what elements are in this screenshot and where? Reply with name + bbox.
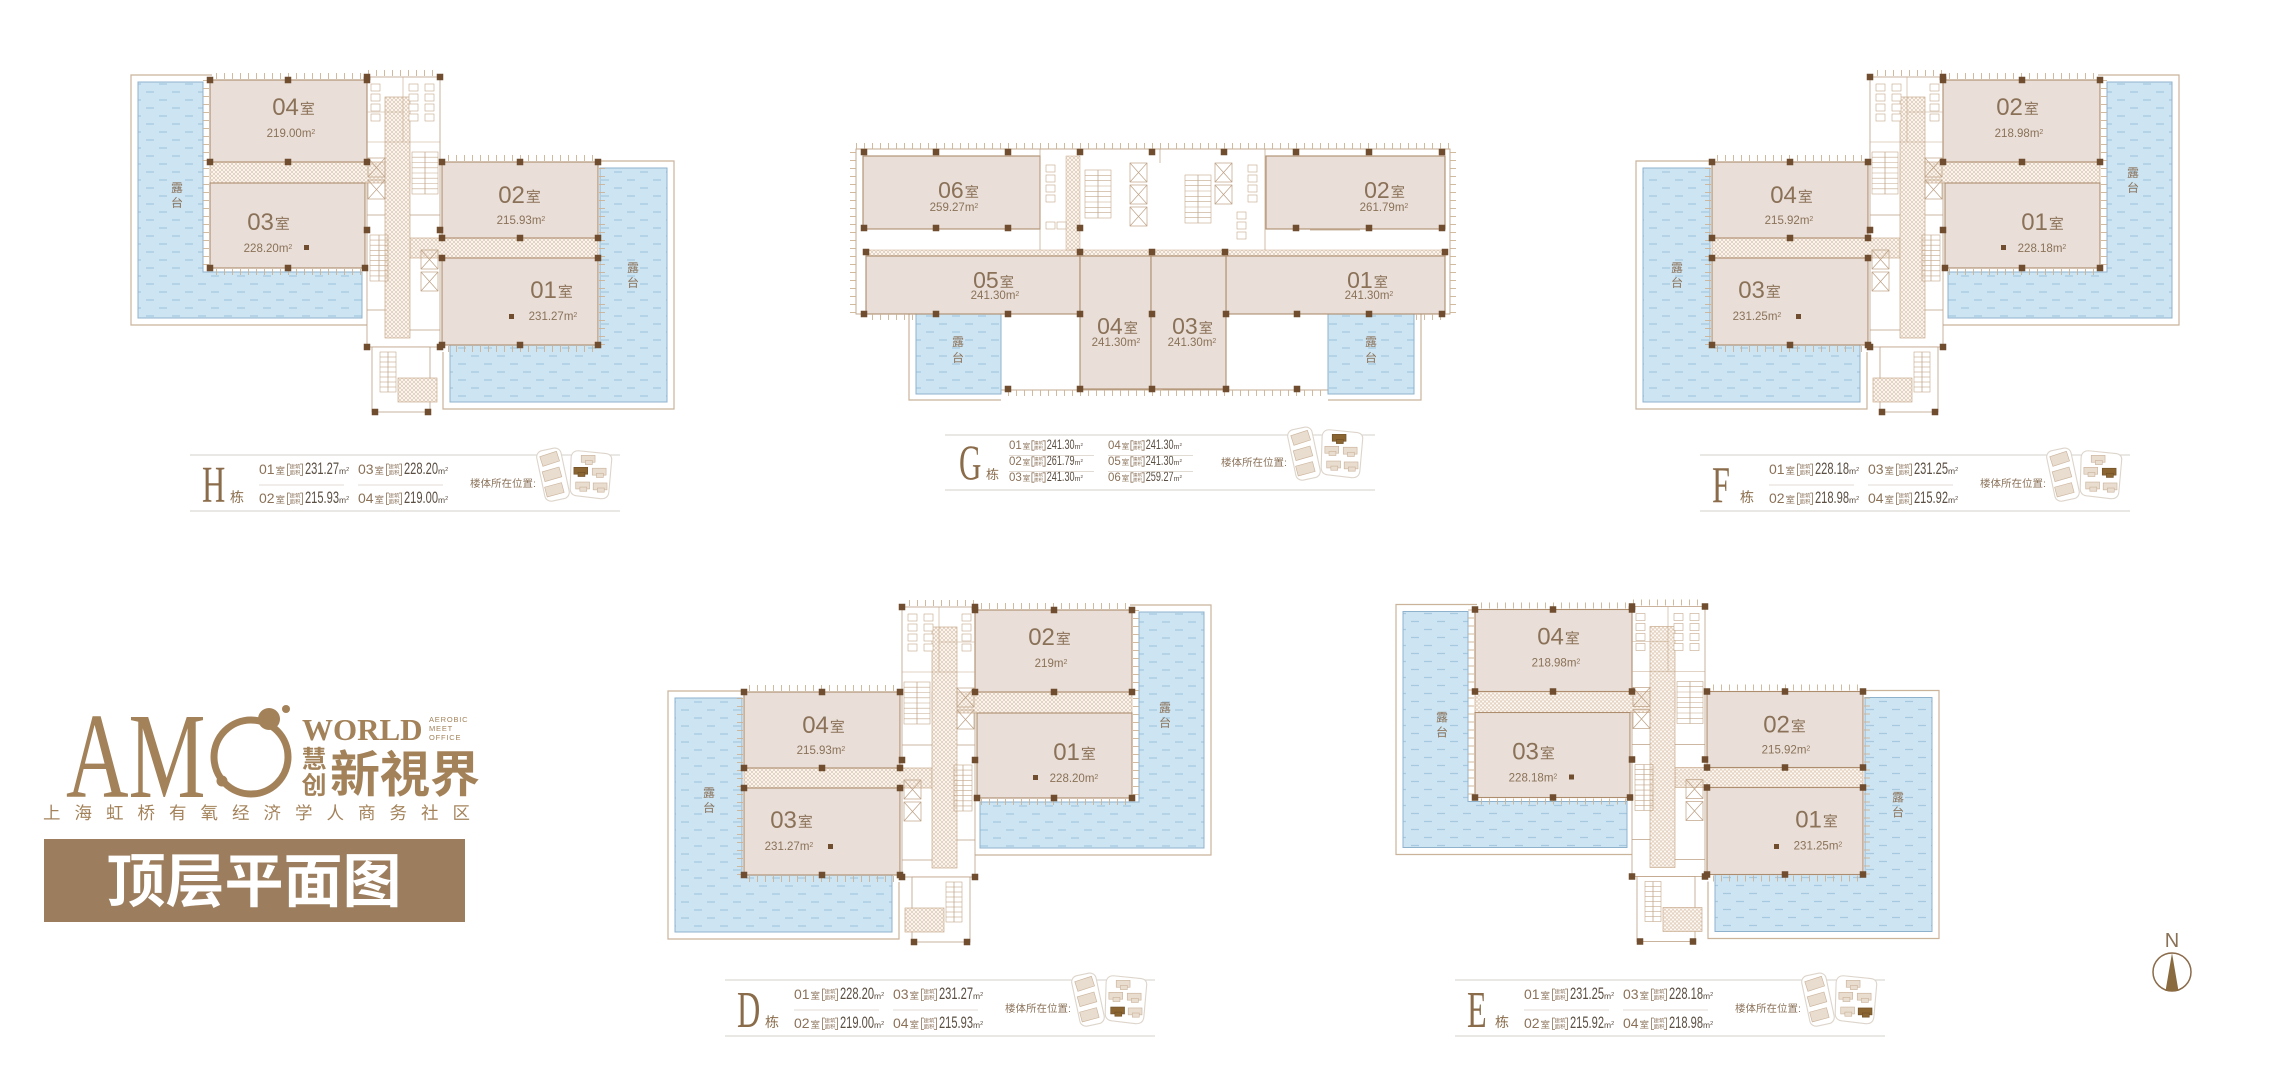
svg-text:06: 06	[1108, 472, 1121, 484]
svg-text:218.98m2: 218.98m2	[1995, 128, 2044, 140]
svg-text:AM: AM	[66, 689, 206, 824]
svg-text:02: 02	[1996, 94, 2023, 121]
svg-text:03: 03	[893, 986, 909, 1002]
svg-text:03: 03	[770, 807, 797, 834]
svg-text:241.30m2: 241.30m2	[1047, 437, 1084, 452]
svg-text:01: 01	[794, 986, 810, 1002]
svg-text:AEROBIC: AEROBIC	[429, 715, 468, 724]
svg-text:01: 01	[1053, 739, 1080, 766]
svg-text:02: 02	[1763, 712, 1790, 739]
svg-text:231.25m2: 231.25m2	[1794, 841, 1843, 853]
svg-text:02: 02	[794, 1015, 810, 1031]
svg-text:04: 04	[802, 712, 829, 739]
svg-text:215.93m2: 215.93m2	[797, 745, 846, 757]
svg-text:01: 01	[1769, 461, 1785, 477]
svg-text:OFFICE: OFFICE	[429, 733, 461, 742]
svg-text:02: 02	[1364, 177, 1390, 203]
svg-text::: :	[2043, 478, 2046, 490]
svg-text:02: 02	[1009, 456, 1022, 468]
svg-text:228.20m2: 228.20m2	[404, 460, 448, 478]
svg-text:01: 01	[1795, 807, 1822, 834]
svg-text:215.93m2: 215.93m2	[939, 1014, 983, 1032]
svg-text:219.00m2: 219.00m2	[404, 489, 448, 507]
svg-text:03: 03	[1868, 461, 1884, 477]
svg-text:H: H	[202, 456, 225, 514]
svg-text:G: G	[959, 435, 981, 490]
svg-text:01: 01	[2021, 209, 2048, 236]
svg-text:228.20m2: 228.20m2	[244, 243, 293, 255]
svg-text:03: 03	[1512, 739, 1539, 766]
svg-text:N: N	[2165, 930, 2179, 952]
svg-text:01: 01	[259, 461, 275, 477]
svg-text:219.00m2: 219.00m2	[267, 128, 316, 140]
svg-text:241.30m2: 241.30m2	[1092, 337, 1141, 349]
svg-text:04: 04	[893, 1015, 909, 1031]
svg-text:04: 04	[1097, 313, 1123, 339]
svg-text:215.92m2: 215.92m2	[1914, 489, 1958, 507]
svg-text::: :	[533, 478, 536, 490]
svg-text:219.00m2: 219.00m2	[840, 1014, 884, 1032]
svg-text:02: 02	[1028, 624, 1055, 651]
svg-text:05: 05	[1108, 456, 1121, 468]
svg-text:01: 01	[530, 277, 557, 304]
svg-text:231.27m2: 231.27m2	[765, 841, 814, 853]
svg-text:228.18m2: 228.18m2	[1669, 985, 1713, 1003]
svg-text:231.25m2: 231.25m2	[1570, 985, 1614, 1003]
svg-text:228.18m2: 228.18m2	[2018, 243, 2067, 255]
svg-text:231.27m2: 231.27m2	[529, 311, 578, 323]
svg-text:231.27m2: 231.27m2	[939, 985, 983, 1003]
svg-text:218.98m2: 218.98m2	[1532, 658, 1581, 670]
svg-text:F: F	[1712, 456, 1730, 514]
svg-text:06: 06	[938, 177, 964, 203]
svg-text:241.30m2: 241.30m2	[1146, 437, 1183, 452]
svg-text:215.93m2: 215.93m2	[497, 215, 546, 227]
svg-text:01: 01	[1524, 986, 1540, 1002]
svg-text:01: 01	[1009, 440, 1022, 452]
svg-text:04: 04	[1868, 490, 1884, 506]
svg-text:04: 04	[1537, 624, 1564, 651]
svg-text:261.79m2: 261.79m2	[1360, 202, 1409, 214]
svg-text:03: 03	[247, 209, 274, 236]
svg-text:241.30m2: 241.30m2	[971, 290, 1020, 302]
svg-text:231.27m2: 231.27m2	[305, 460, 349, 478]
svg-text:04: 04	[1770, 182, 1797, 209]
svg-text:D: D	[737, 981, 760, 1039]
svg-text:219m2: 219m2	[1035, 658, 1068, 670]
svg-text:E: E	[1467, 981, 1487, 1039]
svg-text:241.30m2: 241.30m2	[1345, 290, 1394, 302]
svg-text:03: 03	[1623, 986, 1639, 1002]
svg-text:228.20m2: 228.20m2	[1050, 773, 1099, 785]
svg-text::: :	[1798, 1003, 1801, 1015]
svg-text:228.20m2: 228.20m2	[840, 985, 884, 1003]
svg-text:218.98m2: 218.98m2	[1815, 489, 1859, 507]
svg-text:02: 02	[1524, 1015, 1540, 1031]
svg-text:WORLD: WORLD	[302, 712, 423, 747]
svg-text:03: 03	[358, 461, 374, 477]
svg-text::: :	[1284, 457, 1287, 469]
svg-text:MEET: MEET	[429, 724, 453, 733]
svg-text:228.18m2: 228.18m2	[1815, 460, 1859, 478]
svg-text:215.92m2: 215.92m2	[1762, 745, 1811, 757]
svg-text:03: 03	[1009, 472, 1022, 484]
svg-text:231.25m2: 231.25m2	[1914, 460, 1958, 478]
svg-text:03: 03	[1172, 313, 1198, 339]
svg-text:02: 02	[1769, 490, 1785, 506]
svg-text:04: 04	[1623, 1015, 1639, 1031]
svg-text:259.27m2: 259.27m2	[930, 202, 979, 214]
svg-text:215.92m2: 215.92m2	[1570, 1014, 1614, 1032]
svg-text:215.93m2: 215.93m2	[305, 489, 349, 507]
svg-text:228.18m2: 228.18m2	[1509, 773, 1558, 785]
svg-text:02: 02	[259, 490, 275, 506]
svg-text:218.98m2: 218.98m2	[1669, 1014, 1713, 1032]
svg-text:04: 04	[1108, 440, 1121, 452]
svg-text:04: 04	[358, 490, 374, 506]
svg-text:215.92m2: 215.92m2	[1765, 215, 1814, 227]
svg-text:231.25m2: 231.25m2	[1733, 311, 1782, 323]
svg-text:02: 02	[498, 182, 525, 209]
svg-text:03: 03	[1738, 277, 1765, 304]
svg-text::: :	[1068, 1003, 1071, 1015]
svg-text:241.30m2: 241.30m2	[1168, 337, 1217, 349]
svg-text:04: 04	[272, 94, 299, 121]
